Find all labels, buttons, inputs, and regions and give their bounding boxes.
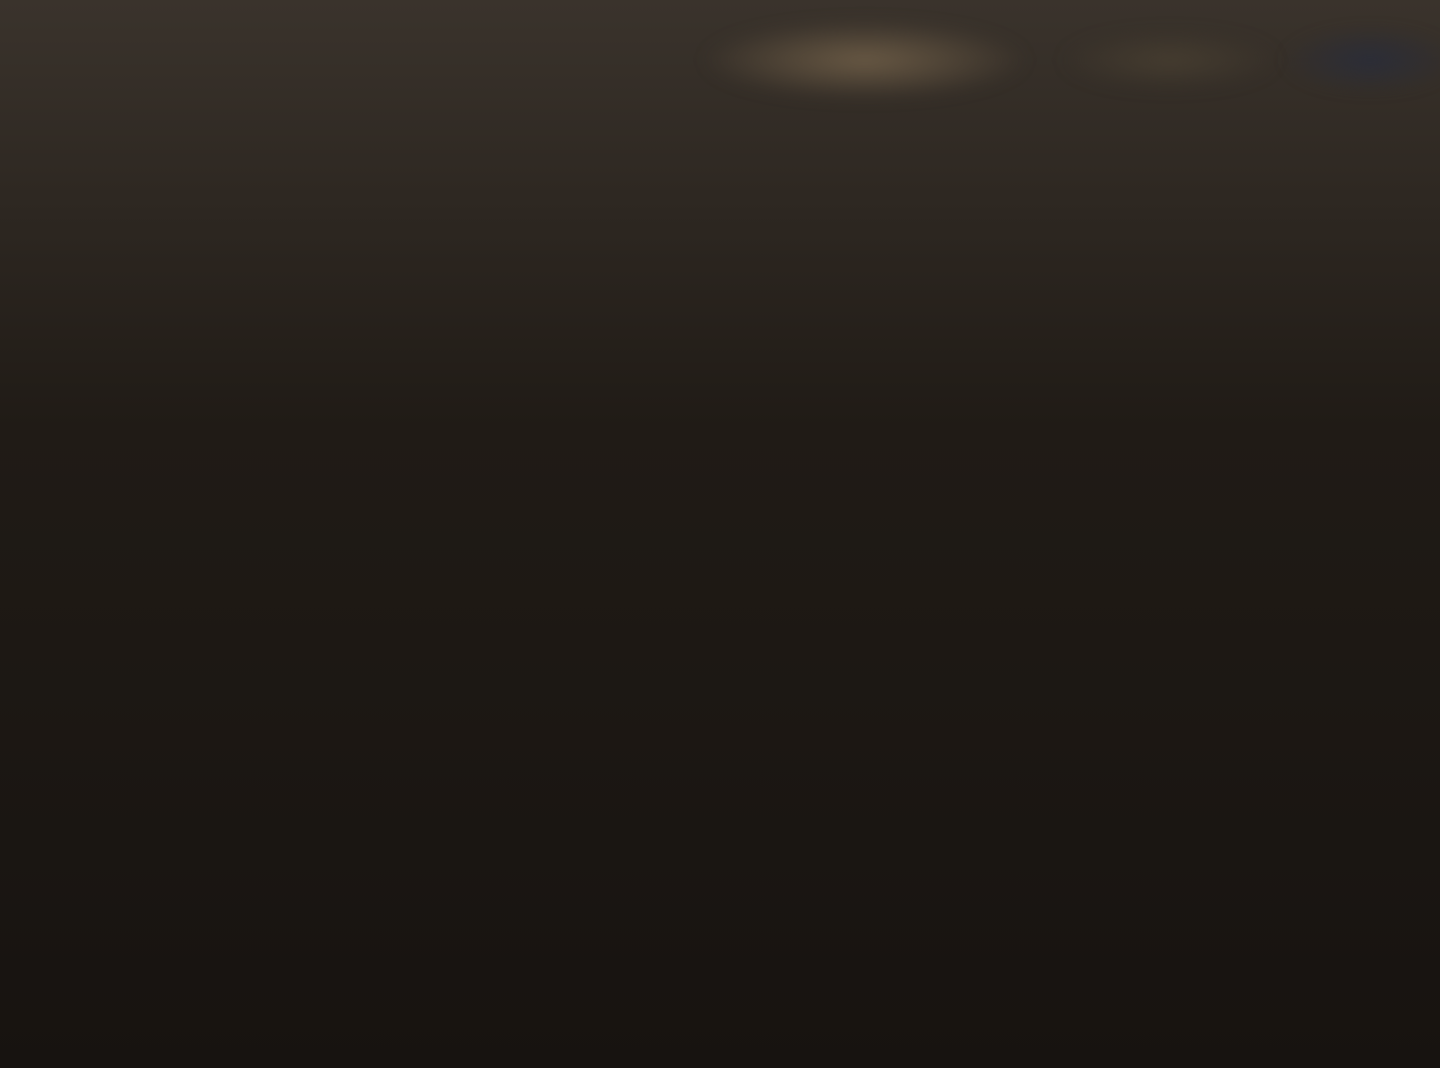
cert-item3-count: 2. [984, 515, 993, 526]
part-plan-scale: SCALE 1:50 [529, 93, 599, 105]
dim-2200: 2200 [255, 234, 273, 242]
cell: 36.68 [1189, 763, 1289, 789]
dim-14000: 14000 [461, 480, 469, 502]
slab-note-concrete-1: NEW CONCRETE SLAB TO BE RE-CASTED [1266, 477, 1411, 485]
paper-glare [1080, 30, 1400, 240]
slab-tension-sub-2: (40d) [1192, 491, 1209, 499]
trim-note-opening-1: EXISTING SLAB TO BE HACKED OFF [1246, 235, 1376, 243]
cell: 10.14 [1190, 788, 1290, 814]
x-marker: X [176, 690, 187, 708]
x-marker: X [292, 296, 301, 312]
section-title: SECTION X -X [148, 53, 298, 75]
dim-6100: 6100 [250, 665, 268, 674]
unit-number-label: #01-06 [283, 559, 329, 575]
trimming-title-line2: T 1ST STOREY SLAB ONLY [1016, 364, 1172, 377]
existing-ic-label: Ext'g IC [213, 248, 240, 256]
dim-7400: 7400 [605, 556, 613, 572]
cert-line7: pertaining to buildings and construction… [682, 439, 948, 448]
area-table: DESCRIPTION AREA (M2) PERCENTAGE(%) KITC… [1046, 708, 1440, 885]
slab-note-steel-1: NEW STEEL REINFORCEMENT (4) FOR REINSTAT… [1135, 446, 1329, 454]
cell: WC & OTHER [1048, 814, 1191, 841]
dim-6100: 6100 [594, 205, 612, 214]
cert-item2-no: 2. [688, 476, 696, 485]
cert-item3-no: 3. [688, 520, 696, 529]
plan2-title: 2ND STOREY LAYOUT PLAN [457, 788, 741, 812]
cert-qp-name-handwritten: Lee Thou Kint [716, 380, 792, 394]
trim-note-recast-2: RECASTED WITH GRADE 40 CONCRETE [1253, 122, 1396, 130]
master-bedroom-label: MASTER BEDROOM [527, 419, 600, 455]
exhaust-fan-annotation: 300 dia exhaust fan [112, 351, 183, 359]
upvc-pipe-annotation: new 100 mm dia UPVC pipe [80, 305, 180, 313]
cell [1191, 863, 1291, 883]
living-label: LIVING [604, 522, 652, 535]
slab-note-steel-3: CUT STEEL FOR THE SLAB [1135, 462, 1227, 470]
trim-note-recast-1: EXISTING SLAB TO BE HACKED OFF AND [1253, 113, 1401, 121]
dim-1300: 1300 [524, 245, 542, 253]
cell: 10.10 [1290, 811, 1440, 838]
cert-line6: the Building Control Act and any other w… [766, 428, 961, 437]
dim-1100: 1100 [308, 336, 316, 352]
cert-line2-suffix: (Qualified Person for Structural Works), [843, 387, 999, 396]
bath-wc-label: BATH W.C [570, 327, 588, 341]
dim-1150: 1150 [419, 326, 427, 342]
kitchen-label: KITCHEN [612, 404, 679, 418]
cell: TOTAL [1048, 839, 1191, 866]
dim-4350: 4350 [308, 434, 316, 450]
slab-tension-label-1: TENSION LAP LENGTH [1102, 478, 1180, 486]
cell: KITCHEN [1047, 739, 1190, 766]
new-kitchen-label: NEW KITCHEN [230, 396, 258, 409]
plan2-scale: SCALE 1:100 [461, 821, 541, 834]
cell [1048, 864, 1191, 885]
plan1-scale: SCALE 1:100 [123, 817, 203, 830]
dim-900: 900 [308, 491, 316, 503]
existing-ic-label: Ext'g IC [158, 335, 185, 343]
cert-item2-line2: calculations are in reference to the Pro… [681, 486, 884, 495]
slab-tension-label-2: TENSION LAP LENGTH [1172, 477, 1250, 485]
cert-line3: hereby submit the detailed structural pl… [684, 398, 947, 407]
trim-rebar-top: 2X2T13(T&B) [1256, 184, 1303, 192]
cert-line5: with the provisions of the Building Cont… [684, 418, 901, 427]
cell: 60.13 [1290, 761, 1440, 788]
trim-dim-450: 450 [1046, 220, 1059, 228]
swing-door-annotation: new swing door [104, 447, 160, 455]
sink-annotation: Ext'g S/S Sink [74, 523, 125, 531]
upvc-pipe-label: new 100 mm dia UPVC pipe [428, 277, 522, 285]
trim-dim-typ: (TYP) [1043, 229, 1063, 237]
screen-chamber-annotation: NEW SCREEN CHAMBER [112, 279, 205, 287]
cert-line4: prepared by me and certify that they hav… [684, 408, 966, 417]
sink-annotation: ex'g S/S sink [87, 465, 134, 473]
refreshment-area-label: REFRESHMENT AREA [281, 514, 344, 532]
dim-2200: 2200 [572, 243, 590, 251]
slab-lean-2: CONCRETE [1036, 558, 1075, 566]
slab-note-steel-2: TO BE SAME SIZE OR BIGGER SIZE THAN THE [1135, 454, 1295, 462]
dim-4150: 4150 [269, 544, 277, 560]
slab-lean-1: 50mm LEAN [1036, 550, 1076, 558]
cert-line2-prefix: I, [683, 387, 688, 396]
cell: 100 [1290, 836, 1440, 863]
cell: 8.02 [1189, 738, 1289, 764]
cell: 61.00 [1190, 838, 1290, 864]
dim-1500: 1500 [237, 9, 245, 27]
trimming-title-line1: TRIMMING BAR DETAILS FOR NEW FLOOR OPENI… [1008, 350, 1316, 363]
dim-2600: 2600 [643, 241, 661, 249]
cell: 13.15 [1289, 736, 1440, 763]
servery-area-label: SERVERY AREA [213, 484, 221, 540]
watermark-credit: Terrell Soh | SRX PROPERTY [11, 933, 238, 973]
dim-2550: 2550 [614, 350, 622, 366]
col-description: DESCRIPTION [1047, 712, 1190, 741]
dim-3550: 3550 [247, 203, 265, 211]
exhaust-hood-annotation-2: submitted separately [4, 385, 79, 393]
col-area: AREA (M2) [1189, 711, 1289, 739]
location-plan-label: Lo [1396, 204, 1428, 234]
slab-note-concrete-2: WITH CONCRETE GRADE S40 [1266, 485, 1368, 493]
cell: 16.62 [1290, 786, 1440, 813]
floor-plan-photo: 1st Storey Level 1500 ext'g pvc door ext… [0, 0, 1440, 1068]
paper-glare [430, 540, 1050, 635]
dim-3000: 3000 [614, 427, 622, 443]
cell: 6.16 [1190, 813, 1290, 839]
dim-1605: 1605 [138, 610, 145, 625]
exhaust-hood-annotation: n exhaust hood with self extinguish devi… [0, 372, 152, 380]
cell: REFRESHMENT [1047, 764, 1190, 791]
cert-item3-text: Total number of structural plans submitt… [748, 518, 919, 527]
dim-8100: 8100 [770, 24, 790, 34]
cell [1291, 861, 1440, 882]
dim-2550: 2550 [340, 222, 358, 230]
grease-trap-ref: (Refer to drawing Ref: PUB/SEW/STD041) [366, 211, 495, 218]
dim-5570: 5570 [137, 516, 145, 532]
bath-wc-label: BATH W.C [576, 357, 594, 371]
ext-pvc-door-label: ext'g pvc door [426, 6, 479, 15]
dim-2470: 2470 [210, 590, 226, 598]
col-percentage: PERCENTAGE(%) [1289, 709, 1440, 738]
slab-faded-note-2: EXISTING SLAB [1060, 636, 1112, 643]
ne-label: NE [509, 636, 523, 647]
plan2-linework [450, 205, 780, 793]
trim-rebar-bottom: 2X2T13(T&B) [1253, 288, 1300, 296]
cell: SERVERY [1047, 789, 1190, 816]
storey-level-label: 1st Storey Level [143, 18, 212, 28]
trim-note-opening-2: FOR NEW OPENING [1246, 244, 1317, 252]
ext-pvc-door-label: ext'g pvc door [606, 1, 663, 11]
slab-tension-sub-1: (40d) [1124, 492, 1141, 500]
slab-detail-title: TYPICAL DETAIL OF SLAB REINSTATEMENT (UN… [1096, 645, 1440, 677]
service-yard-label: SERVICE YARD [253, 316, 289, 334]
existing-ic-label: Ext'g IC [399, 251, 426, 259]
section-scale: SCALE 1:100 [171, 77, 248, 89]
slab-faded-note-1: CUTTING OPENING AT [1060, 628, 1134, 635]
grease-trap-label: NEW GREASE TRAP [362, 201, 433, 209]
table-row-empty [1048, 861, 1440, 885]
escapeway-label: 1200mm WIDE ESCAPEWAY [300, 404, 307, 494]
watermark-banner: Terrell Soh | SRX PROPERTY [0, 925, 238, 963]
upvc-pipe-annotation: new 100 mm dia UPVC pipe [74, 262, 174, 270]
store-label: STORE [514, 517, 566, 533]
